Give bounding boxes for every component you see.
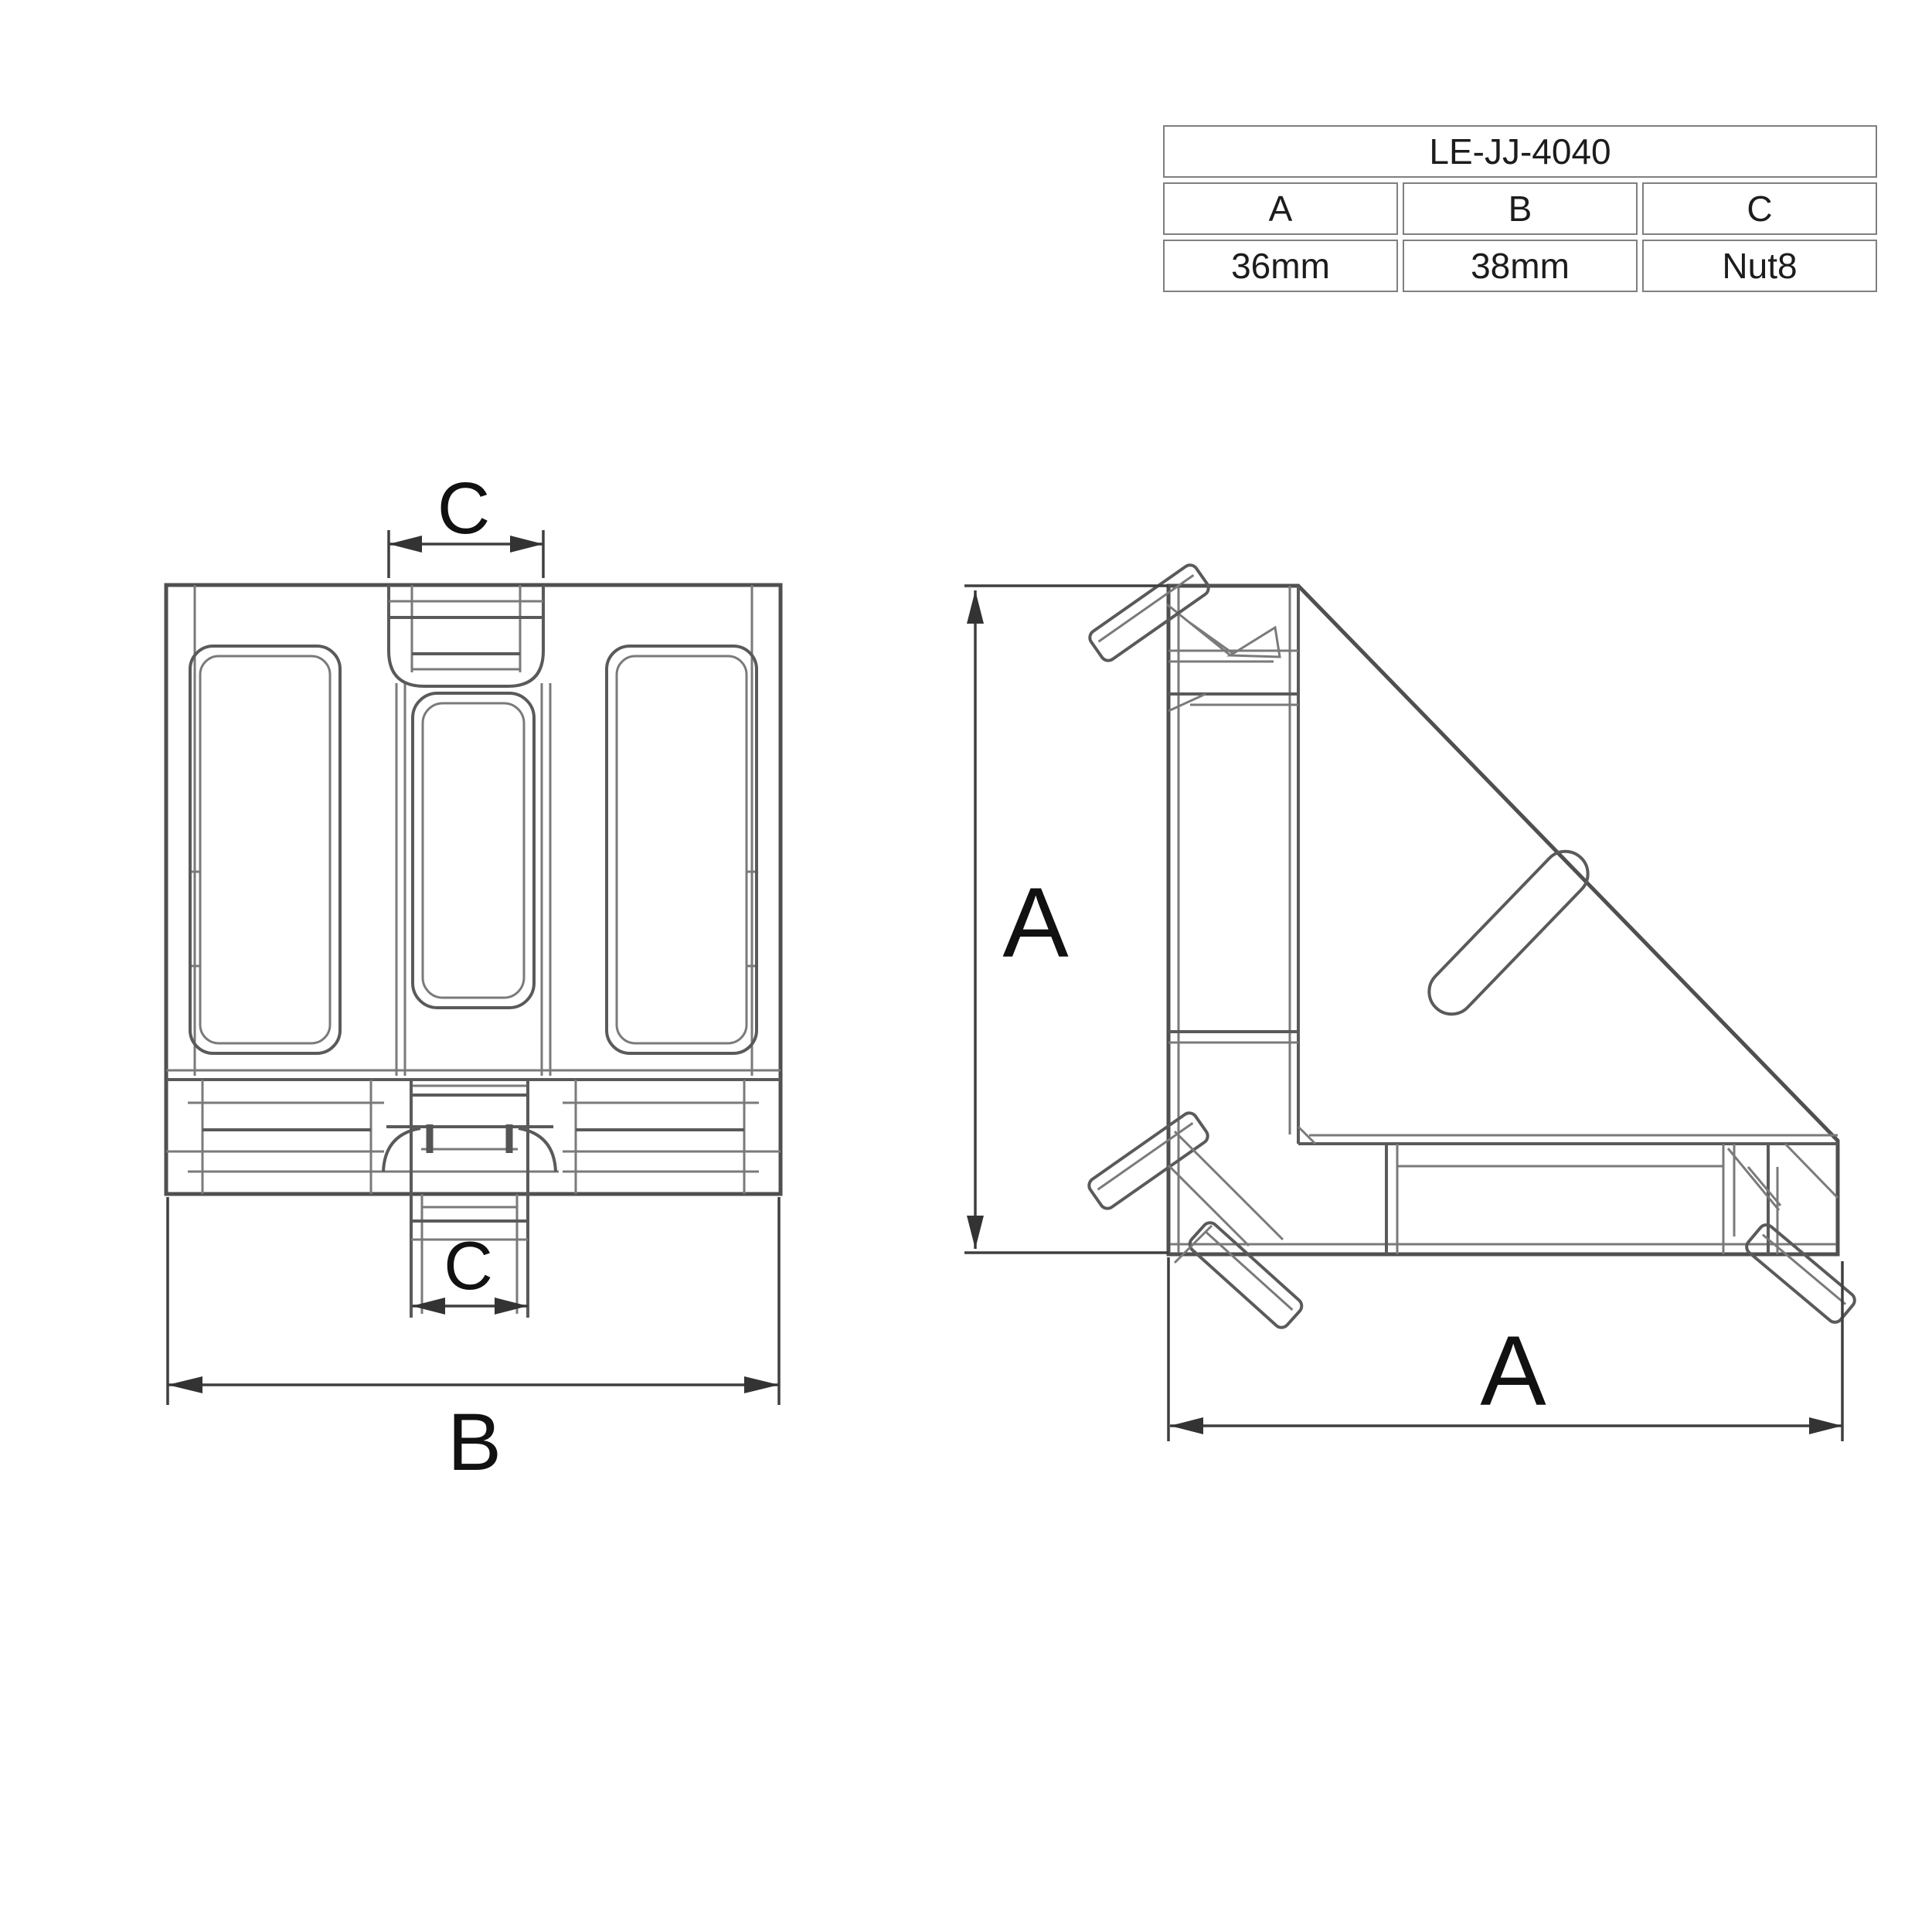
front-dim-c-top: C bbox=[389, 468, 543, 578]
front-slot-left bbox=[190, 646, 340, 1053]
spec-table: LE-JJ-4040 A B C 36mm 38mm Nut8 bbox=[1158, 121, 1882, 297]
spec-table-header-a: A bbox=[1163, 182, 1398, 235]
spec-table-value-a: 36mm bbox=[1163, 240, 1398, 292]
dim-label-c-bottom: C bbox=[444, 1227, 493, 1304]
side-tab-bottom-left-lower bbox=[1187, 1219, 1305, 1331]
spec-table-header-b: B bbox=[1403, 182, 1638, 235]
dim-label-b: B bbox=[447, 1397, 502, 1488]
side-horizontal-leg-details bbox=[1386, 1144, 1838, 1254]
spec-table-header-c: C bbox=[1642, 182, 1877, 235]
dim-label-a-horizontal: A bbox=[1480, 1316, 1546, 1427]
side-view: A A bbox=[964, 562, 1858, 1441]
front-bottom-band bbox=[166, 1070, 781, 1194]
spec-table-model: LE-JJ-4040 bbox=[1163, 125, 1877, 178]
drawing-canvas: C C B bbox=[0, 0, 1932, 1932]
front-view: C C B bbox=[166, 468, 781, 1488]
side-outline bbox=[1168, 586, 1838, 1254]
spec-table-value-b: 38mm bbox=[1403, 240, 1638, 292]
front-slot-right bbox=[607, 646, 757, 1053]
side-vertical-leg-details bbox=[1167, 604, 1298, 1043]
side-tab-bottom-right bbox=[1743, 1222, 1858, 1325]
side-dim-a-horizontal: A bbox=[1168, 1257, 1842, 1441]
dim-label-a-vertical: A bbox=[1002, 868, 1069, 978]
side-tab-top bbox=[1087, 562, 1211, 663]
front-center-channel bbox=[396, 683, 550, 1076]
side-web-slot bbox=[1420, 842, 1597, 1024]
front-top-tab bbox=[389, 585, 543, 686]
side-dim-a-vertical: A bbox=[964, 586, 1168, 1253]
side-tab-bottom-left-upper bbox=[1086, 1110, 1210, 1211]
dim-label-c-top: C bbox=[437, 468, 491, 549]
spec-table-value-c: Nut8 bbox=[1642, 240, 1877, 292]
